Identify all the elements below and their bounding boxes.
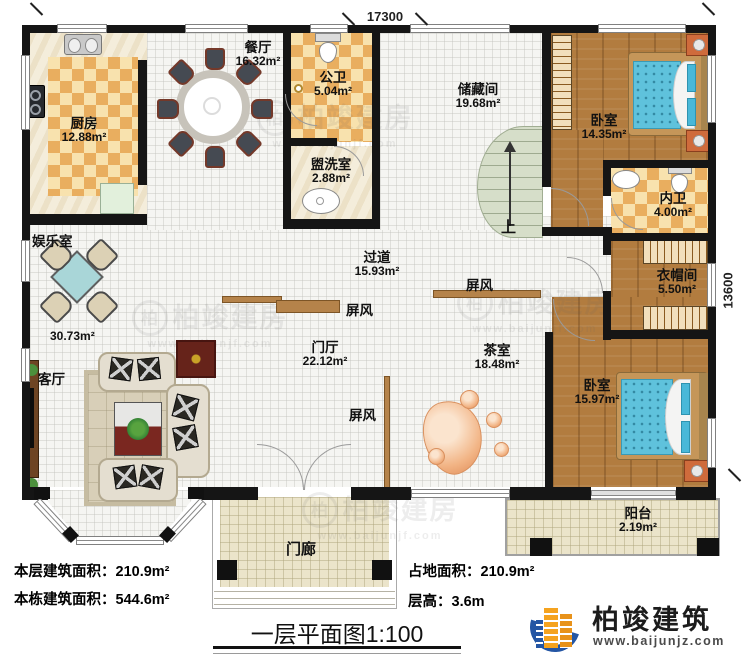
toilet — [315, 33, 341, 42]
wall — [138, 60, 147, 185]
stat-label: 层高： — [408, 594, 452, 610]
dining-chair — [205, 48, 225, 70]
room-label-balcony: 阳台 2.19m² — [608, 506, 668, 535]
room-name: 储藏间 — [458, 82, 499, 97]
porch-step — [214, 591, 395, 592]
room-label-corridor: 过道 15.93m² — [348, 250, 406, 279]
wall — [676, 487, 716, 500]
room-label-inner-bath: 内卫 4.00m² — [643, 191, 703, 220]
sofa — [98, 458, 178, 502]
wall — [542, 33, 551, 187]
wall — [611, 233, 708, 241]
sofa-pillow — [138, 464, 163, 489]
brand-name: 柏竣建筑 — [592, 598, 742, 637]
logo-building-block — [536, 620, 543, 648]
room-name: 阳台 — [625, 506, 652, 521]
room-name: 衣帽间 — [657, 268, 698, 283]
wall — [351, 487, 411, 500]
room-label-kitchen: 厨房 12.88m² — [52, 116, 116, 145]
room-area: 12.88m² — [52, 131, 116, 144]
room-label-public-bath: 公卫 5.04m² — [306, 70, 360, 99]
room-area-entertainment: 30.73m² — [50, 329, 95, 343]
stat-value: 210.9m² — [116, 564, 170, 580]
room-name: 盥洗室 — [311, 157, 352, 172]
stairs-arrow — [509, 150, 511, 226]
porch-post — [372, 560, 392, 580]
room-label-tea: 茶室 18.48m² — [464, 343, 530, 372]
brand-logo: 柏竣建筑 www.baijunjz.com — [528, 596, 742, 658]
room-area: 15.97m² — [562, 393, 632, 406]
wall — [545, 332, 553, 500]
sliding-door — [591, 490, 676, 496]
balcony-post — [530, 538, 552, 556]
window — [310, 24, 348, 33]
window — [707, 55, 716, 123]
room-area: 14.35m² — [570, 128, 638, 141]
stat-label: 本栋建筑面积： — [14, 592, 116, 608]
corner-mark — [702, 2, 715, 15]
stone-decor — [428, 448, 445, 465]
window — [598, 24, 686, 33]
building-area-stat: 本栋建筑面积：544.6m² — [14, 588, 170, 609]
page-title: 一层平面图1:100 — [213, 615, 461, 649]
window — [411, 489, 510, 498]
stat-value: 544.6m² — [116, 592, 170, 608]
room-name: 门厅 — [312, 340, 339, 355]
room-name: 厨房 — [71, 116, 98, 131]
inner-bath-sink — [612, 170, 640, 189]
sofa-pillow — [113, 465, 138, 490]
room-area: 2.88m² — [302, 172, 360, 185]
room-name: 餐厅 — [245, 40, 272, 55]
corner-table — [176, 340, 216, 378]
dimension-top: 17300 — [355, 9, 415, 24]
room-label-dining: 餐厅 16.32m² — [226, 40, 290, 69]
room-area: 2.19m² — [608, 521, 668, 534]
stone-decor — [486, 412, 502, 428]
room-label-porch: 门廊 — [286, 538, 316, 559]
refrigerator — [100, 183, 134, 214]
wall — [200, 487, 258, 500]
room-area: 18.48m² — [464, 358, 530, 371]
room-label-living: 客厅 — [38, 368, 65, 388]
room-name: 卧室 — [584, 378, 611, 393]
bed — [628, 52, 708, 136]
room-name: 过道 — [364, 250, 391, 265]
wall — [603, 168, 611, 196]
sofa-pillow — [137, 357, 161, 381]
logo-building-block — [544, 608, 558, 648]
stat-value: 3.6m — [452, 594, 485, 610]
stat-label: 占地面积： — [408, 564, 481, 580]
window — [21, 240, 30, 282]
towel-ring — [294, 84, 303, 93]
dining-chair — [205, 146, 225, 168]
corner-mark — [30, 2, 43, 15]
window — [707, 418, 716, 468]
stairs-arrow-head — [504, 141, 516, 152]
room-area: 16.32m² — [226, 55, 290, 68]
room-area: 5.50m² — [644, 283, 710, 296]
wardrobe — [552, 35, 572, 130]
storey-height-stat: 层高：3.6m — [408, 590, 485, 611]
window — [410, 24, 510, 33]
bay-corner-post — [34, 487, 50, 499]
dimension-right: 13600 — [721, 261, 736, 321]
wall — [603, 291, 611, 340]
window — [185, 24, 248, 33]
bay-window — [76, 536, 164, 545]
room-label-foyer: 门厅 22.12m² — [292, 340, 358, 369]
dining-chair — [157, 99, 179, 119]
balcony-post — [697, 538, 719, 556]
porch-post — [217, 560, 237, 580]
stone-decor — [460, 390, 479, 409]
wall — [603, 232, 611, 255]
window — [21, 348, 30, 382]
screen-label: 屏风 — [346, 299, 373, 319]
screen-label: 屏风 — [349, 404, 376, 424]
room-name: 内卫 — [660, 191, 687, 206]
sofa-pillow — [109, 357, 134, 382]
porch-step — [214, 598, 395, 599]
porch-step — [214, 604, 395, 605]
room-area: 5.04m² — [306, 85, 360, 98]
wall — [603, 160, 716, 168]
land-area-stat: 占地面积：210.9m² — [408, 560, 535, 581]
window — [21, 55, 30, 130]
room-label-storage: 储藏间 19.68m² — [442, 82, 514, 111]
room-area: 19.68m² — [442, 97, 514, 110]
wall — [611, 330, 708, 339]
room-name: 茶室 — [484, 343, 511, 358]
window — [57, 24, 107, 33]
brand-url: www.baijunjz.com — [593, 634, 743, 648]
plant — [127, 418, 149, 440]
floor-area-stat: 本层建筑面积：210.9m² — [14, 560, 170, 581]
room-name: 卧室 — [591, 113, 618, 128]
wall — [291, 138, 337, 146]
screen-divider — [384, 376, 390, 490]
room-area: 4.00m² — [643, 206, 703, 219]
title-underline-thin — [213, 653, 461, 654]
screen-label: 屏风 — [466, 274, 493, 294]
stat-value: 210.9m² — [481, 564, 535, 580]
corner-mark — [728, 468, 741, 481]
title-underline — [213, 646, 461, 649]
stairs-up-label: 上 — [501, 216, 516, 237]
wardrobe — [643, 240, 708, 264]
wall — [22, 214, 147, 225]
room-area: 22.12m² — [292, 355, 358, 368]
room-label-washroom: 盥洗室 2.88m² — [302, 157, 360, 186]
wall — [372, 33, 380, 229]
washroom-sink — [302, 188, 340, 214]
bay-corner-post — [188, 487, 204, 499]
brand-logo-icon — [530, 600, 584, 654]
room-label-cloakroom: 衣帽间 5.50m² — [644, 268, 710, 297]
wall — [283, 219, 380, 229]
logo-building-block — [560, 614, 572, 648]
room-label-bedroom2: 卧室 15.97m² — [562, 378, 632, 407]
sofa-pillow — [172, 424, 199, 451]
room-label-entertainment: 娱乐室 — [32, 230, 73, 250]
wall — [542, 227, 612, 236]
stone-decor — [494, 442, 509, 457]
wardrobe — [643, 306, 708, 330]
screen-divider — [276, 300, 340, 313]
room-label-bedroom1: 卧室 14.35m² — [570, 113, 638, 142]
stat-label: 本层建筑面积： — [14, 564, 116, 580]
kitchen-sink — [64, 34, 102, 55]
room-name: 公卫 — [320, 70, 347, 85]
dining-chair — [251, 99, 273, 119]
floorplan-page: { "meta": { "title": "一层平面图1:100" }, "di… — [0, 0, 750, 665]
screen-divider — [222, 296, 282, 303]
room-area: 15.93m² — [348, 265, 406, 278]
